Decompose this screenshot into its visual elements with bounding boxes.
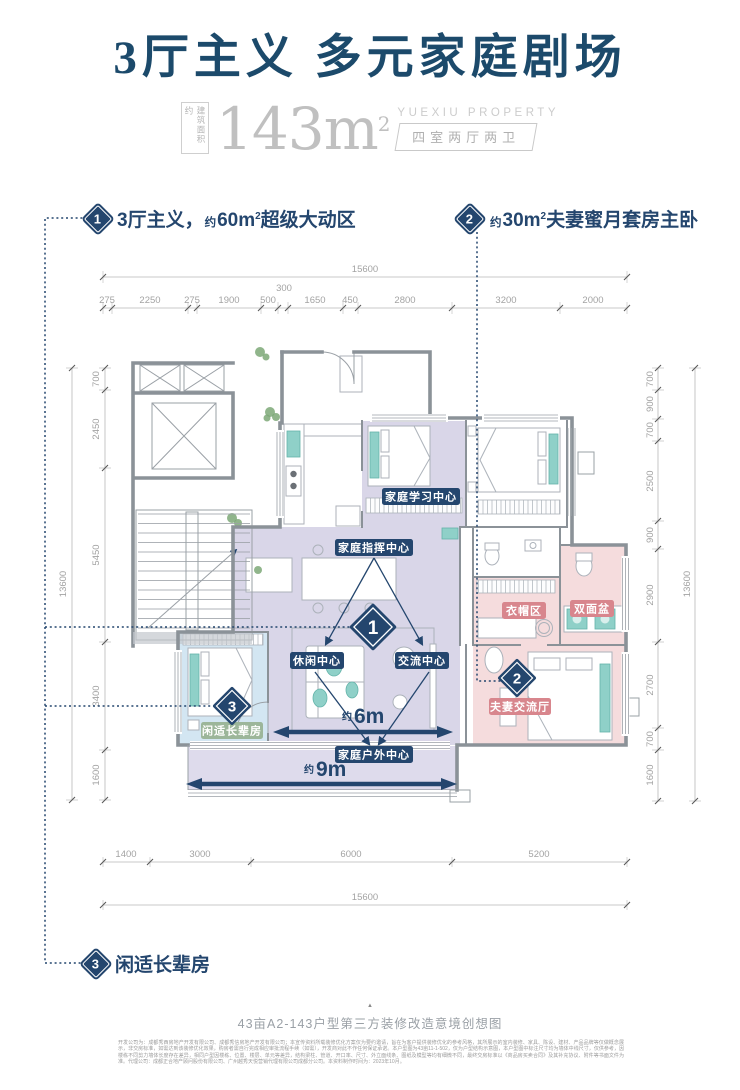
callout-3-diamond: 3 (82, 949, 110, 977)
bench (500, 688, 516, 726)
nightstand (188, 720, 199, 730)
ac-platform (578, 452, 594, 474)
study-room (368, 426, 430, 486)
callout-2: 2 约30m2夫妻蜜月套房主卧 (460, 205, 698, 232)
double-basin-room (564, 553, 622, 632)
ac-platform (627, 698, 639, 716)
entry-hall (322, 352, 362, 392)
span6-value: 6m (354, 705, 384, 728)
master-bedroom (485, 647, 612, 740)
building-core (133, 363, 252, 646)
balcony-fill (188, 746, 457, 790)
area-label-vertical: 建筑面积约 (181, 102, 209, 154)
master-bed (528, 652, 612, 740)
elder-door-arc (236, 702, 268, 734)
master-toilet (576, 556, 592, 576)
dining-table (302, 558, 396, 600)
poster-page: 15600 275 2250 275 1900 500 300 1650 450… (0, 0, 740, 1090)
landing (133, 632, 252, 644)
label-leisure: 休闲中心 (292, 654, 341, 668)
brand-column: YUEXIU PROPERTY 四室两厅两卫 (397, 107, 559, 154)
leader-lines (45, 218, 501, 963)
living-zone-fill (233, 527, 460, 745)
svg-text:2450: 2450 (91, 418, 102, 439)
entry-door-arc (322, 352, 354, 384)
vent-shaft (184, 365, 224, 391)
zone-fills (178, 421, 626, 790)
callout-3: 3 闲适长辈房 (86, 950, 210, 977)
svg-text:1400: 1400 (115, 849, 136, 860)
svg-text:700: 700 (91, 371, 102, 387)
callout-1: 1 3厅主义，约60m2超级大动区 (88, 205, 356, 232)
brand-name: YUEXIU PROPERTY (397, 107, 559, 119)
fridge (336, 506, 360, 526)
bay-window (568, 428, 575, 516)
leader-1-3 (45, 218, 92, 963)
marker-2: 2 (513, 671, 521, 688)
balcony-step (450, 790, 470, 802)
svg-text:3000: 3000 (189, 849, 210, 860)
shoe-cabinet (340, 356, 362, 392)
tv-cabinet (430, 644, 436, 728)
cloak-area (478, 618, 553, 638)
svg-text:1900: 1900 (218, 295, 239, 306)
span9-value: 9m (316, 758, 346, 781)
study-bed (368, 426, 430, 486)
span-arrows: 约 6m 约 9m (186, 705, 457, 790)
callout-2-diamond: 2 (456, 204, 484, 232)
layout-spec: 四室两厅两卫 (413, 127, 521, 146)
toilet (485, 547, 499, 565)
svg-text:700: 700 (645, 371, 656, 387)
stairwell (136, 510, 252, 640)
washbasin (525, 540, 541, 551)
svg-text:700: 700 (645, 422, 656, 438)
armchair (393, 647, 415, 669)
stair-arrow (148, 550, 236, 628)
label-elder: 闲适长辈房 (202, 724, 262, 738)
svg-text:900: 900 (645, 396, 656, 412)
area-number: 143m (216, 95, 378, 163)
area-value: 143m2 (216, 106, 390, 154)
elder-room (188, 648, 268, 734)
label-basin: 双面盆 (574, 602, 610, 616)
rug (292, 628, 434, 732)
svg-text:2000: 2000 (582, 295, 603, 306)
flow-arrows (315, 558, 429, 744)
island (246, 558, 292, 592)
callout-2-number: 2 (466, 211, 473, 226)
lounge-chair (485, 647, 503, 673)
svg-text:450: 450 (342, 295, 358, 306)
bedroom2-bed (478, 428, 560, 492)
label-exchange: 交流中心 (398, 654, 446, 668)
svg-text:275: 275 (184, 295, 200, 306)
floor-plan-svg: 15600 275 2250 275 1900 500 300 1650 450… (0, 0, 740, 1090)
span6-approx: 约 (342, 710, 352, 723)
svg-text:5200: 5200 (528, 849, 549, 860)
svg-text:6000: 6000 (340, 849, 361, 860)
basin-counter (564, 606, 622, 632)
svg-text:1650: 1650 (304, 295, 325, 306)
dim-top-total: 15600 (352, 264, 378, 275)
dim-left-total: 13600 (58, 571, 69, 597)
caption: 43亩A2-143户型第三方装修改造意境创想图 (0, 1013, 740, 1032)
marker-3: 3 (228, 699, 236, 716)
elevator (152, 403, 216, 469)
balcony-rail (188, 790, 457, 797)
svg-text:300: 300 (276, 283, 292, 294)
living-dining (246, 528, 458, 732)
elder-bed (188, 648, 252, 716)
dresser (478, 618, 536, 638)
elder-room-fill (178, 632, 268, 745)
label-couple: 夫妻交流厅 (490, 700, 550, 714)
svg-text:1600: 1600 (645, 764, 656, 785)
svg-text:275: 275 (99, 295, 115, 306)
marker-1: 1 (368, 618, 379, 639)
svg-text:2900: 2900 (645, 584, 656, 605)
master-suite-fill (473, 577, 626, 745)
zone-labels: 家庭学习中心 家庭指挥中心 休闲中心 交流中心 家庭户外中心 衣帽区 双面盆 夫… (201, 488, 614, 763)
windows (174, 414, 630, 797)
svg-text:2700: 2700 (645, 674, 656, 695)
layout-spec-box: 四室两厅两卫 (395, 123, 538, 151)
plants (227, 347, 280, 527)
svg-text:500: 500 (260, 295, 276, 306)
bedroom-2 (468, 426, 560, 492)
leader-to-marker2 (477, 232, 501, 681)
svg-text:5450: 5450 (91, 544, 102, 565)
dim-right-total: 13600 (682, 571, 693, 597)
callout-3-number: 3 (92, 956, 99, 971)
svg-text:3400: 3400 (91, 685, 102, 706)
svg-text:1600: 1600 (91, 764, 102, 785)
label-cloak: 衣帽区 (506, 604, 542, 618)
bath-2 (485, 540, 541, 565)
label-study: 家庭学习中心 (385, 490, 457, 504)
disclaimer-text: 开发公司为：成都秀西房地产开发有限公司、成都秀信房地产开发有限公司；本宣传资料所… (118, 1040, 624, 1065)
area-subtitle: 建筑面积约 143m2 YUEXIU PROPERTY 四室两厅两卫 (0, 102, 740, 154)
plan-markers: 1 2 3 (212, 603, 537, 726)
area-sup: 2 (378, 112, 391, 136)
sofa (306, 646, 364, 718)
span9-approx: 约 (304, 763, 314, 776)
svg-text:900: 900 (645, 527, 656, 543)
mirror (536, 620, 553, 637)
callout-2-text: 约30m2夫妻蜜月套房主卧 (489, 205, 698, 232)
callout-3-text: 闲适长辈房 (115, 950, 210, 977)
pass-sink (442, 528, 458, 539)
kitchen (284, 424, 362, 526)
svg-text:2500: 2500 (645, 470, 656, 491)
dimensions: 15600 275 2250 275 1900 500 300 1650 450… (58, 264, 701, 910)
kitchen-sink (287, 431, 300, 457)
page-title: 3厅主义 多元家庭剧场 (0, 18, 740, 87)
stove (286, 466, 301, 496)
hatch-strips (183, 498, 560, 645)
label-outdoor: 家庭户外中心 (338, 748, 410, 762)
sliding-door (190, 743, 450, 749)
svg-text:2800: 2800 (394, 295, 415, 306)
callout-1-number: 1 (94, 211, 101, 226)
walls (178, 352, 639, 802)
basin-left (567, 609, 587, 629)
caption-marker: ▲ (0, 1003, 740, 1009)
basin-room-fill (560, 545, 626, 645)
study-room-fill (362, 421, 466, 527)
vent-shaft (140, 365, 180, 391)
callout-1-text: 3厅主义，约60m2超级大动区 (117, 205, 356, 232)
svg-text:2250: 2250 (139, 295, 160, 306)
label-command: 家庭指挥中心 (338, 541, 410, 555)
callout-1-diamond: 1 (84, 204, 112, 232)
dim-bottom-total: 15600 (352, 892, 378, 903)
pouf (393, 695, 407, 709)
basin-right (595, 609, 615, 629)
svg-text:3200: 3200 (495, 295, 516, 306)
svg-text:700: 700 (645, 731, 656, 747)
